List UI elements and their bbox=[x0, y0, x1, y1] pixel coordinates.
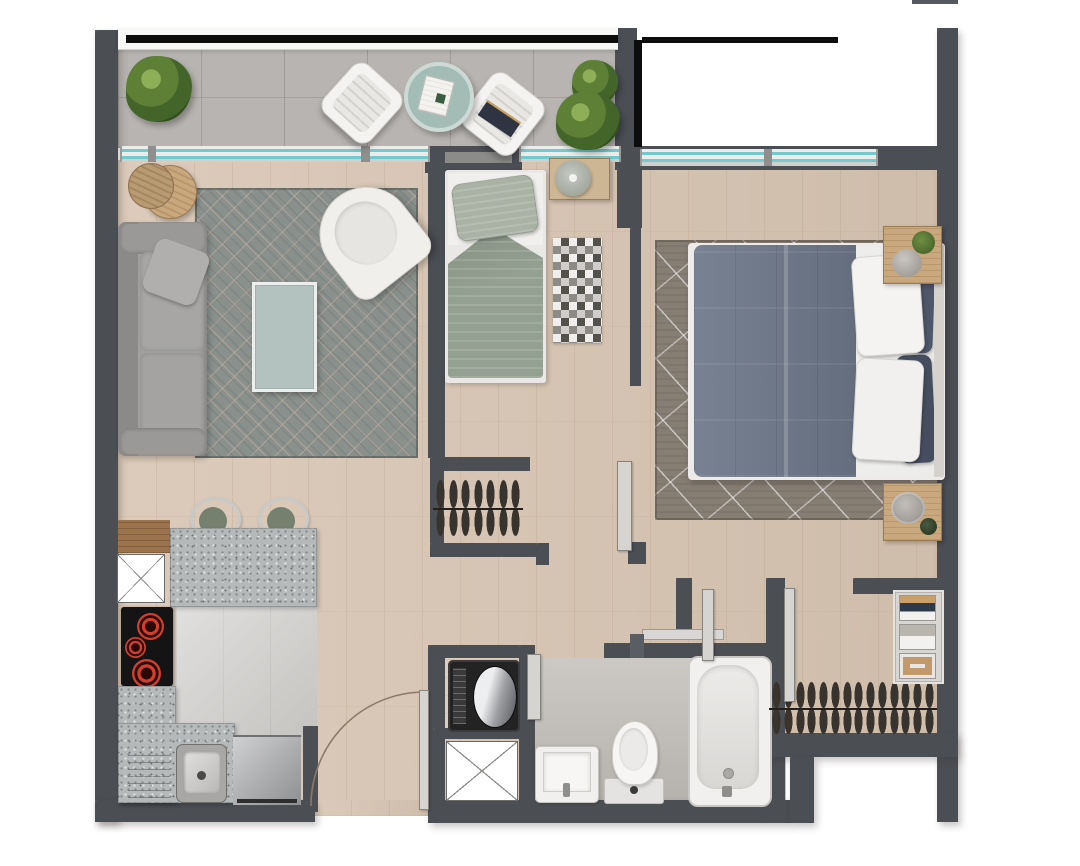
dishwasher bbox=[233, 735, 301, 805]
breakfast-bar-counter bbox=[170, 528, 317, 607]
sofa-back bbox=[118, 222, 138, 456]
sofa-armrest-bottom bbox=[121, 428, 205, 454]
kitchen-sink bbox=[176, 744, 227, 803]
burner-1 bbox=[137, 613, 164, 640]
nightstand-master-bottom bbox=[883, 483, 942, 541]
neighbor-railing-bar bbox=[642, 37, 838, 43]
nightstand-small-bedroom bbox=[549, 158, 610, 200]
neighbor-wall-sliver bbox=[912, 0, 958, 4]
nightstand-plant-small bbox=[920, 518, 937, 535]
cooktop bbox=[121, 607, 173, 686]
wall-smallbed-master-b bbox=[630, 228, 641, 386]
wall-living-smallbed bbox=[428, 146, 445, 458]
bathtub-drain bbox=[723, 768, 734, 779]
sofa bbox=[118, 222, 207, 456]
wall-closet-entry-stub bbox=[676, 578, 692, 633]
side-table-small bbox=[128, 163, 174, 209]
shelf-stack-1 bbox=[899, 595, 936, 621]
nightstand-pouf bbox=[891, 492, 925, 524]
single-bed bbox=[445, 170, 546, 383]
floor-plan bbox=[0, 0, 1080, 866]
single-bed-pillow bbox=[450, 174, 539, 243]
wall-closet-leg bbox=[790, 757, 814, 823]
single-bed-duvet bbox=[448, 228, 543, 378]
burner-2 bbox=[125, 637, 146, 658]
bathroom-sink bbox=[535, 746, 599, 803]
entry-door-swing-arc bbox=[308, 690, 428, 810]
sink-drain bbox=[197, 771, 206, 780]
wall-hallcloset-stub bbox=[536, 543, 549, 565]
sink-faucet bbox=[563, 783, 570, 797]
towel-bar-bracket bbox=[630, 634, 644, 658]
toilet-bowl bbox=[612, 721, 658, 785]
sliding-door-master bbox=[617, 461, 632, 551]
window-master bbox=[640, 149, 878, 166]
window-living bbox=[120, 146, 430, 162]
wall-closet-bottom bbox=[766, 733, 958, 757]
washer-lid bbox=[473, 666, 517, 728]
wall-laundry-left bbox=[428, 645, 445, 803]
closet-shelf-unit bbox=[893, 590, 944, 684]
chair-towel bbox=[330, 71, 393, 135]
bathtub-faucet bbox=[722, 786, 732, 797]
washer-controls bbox=[453, 668, 466, 724]
wall-hallcloset-top bbox=[430, 457, 530, 471]
small-bedroom-rug bbox=[553, 238, 602, 343]
armchair-seat bbox=[322, 189, 410, 278]
balcony-railing-return bbox=[634, 40, 642, 147]
toilet-seat bbox=[619, 728, 648, 771]
kitchen-floor bbox=[176, 607, 317, 737]
washing-machine bbox=[448, 660, 520, 732]
nightstand-tray bbox=[892, 249, 922, 277]
nightstand-master-top bbox=[883, 226, 942, 284]
wall-left bbox=[95, 30, 118, 822]
wall-smallbed-master-a bbox=[617, 168, 642, 228]
sliding-door-bathroom bbox=[527, 654, 541, 720]
dishwasher-kick bbox=[237, 799, 297, 803]
walkin-closet-hangers bbox=[772, 681, 934, 735]
hall-closet-hangers bbox=[436, 479, 520, 537]
toilet-flush-dot bbox=[630, 786, 638, 794]
entry-door-leaf bbox=[419, 690, 429, 810]
service-shaft-laundry bbox=[446, 741, 518, 801]
burner-3 bbox=[132, 659, 161, 688]
drainboard bbox=[128, 750, 170, 798]
table-lamp-finial bbox=[569, 174, 577, 182]
window-master-mullion bbox=[764, 149, 772, 166]
window-living-mullion-1 bbox=[148, 146, 156, 162]
balcony-plant-right bbox=[556, 92, 620, 150]
master-duvet-fold bbox=[784, 245, 788, 477]
balcony-round-table bbox=[404, 62, 474, 132]
service-shaft-kitchen bbox=[117, 554, 165, 603]
sliding-door-closet-left bbox=[702, 589, 714, 661]
shelf-stack-2 bbox=[899, 624, 936, 650]
balcony-plant-left bbox=[126, 56, 192, 122]
wall-hallcloset-bottom bbox=[430, 543, 536, 557]
master-duvet bbox=[694, 245, 856, 477]
sliding-door-closet-right bbox=[784, 588, 795, 702]
window-living-mullion-2 bbox=[361, 146, 370, 162]
coffee-table bbox=[252, 282, 317, 392]
shelf-box bbox=[899, 653, 936, 679]
master-pillow-white-2 bbox=[851, 357, 924, 462]
balcony-railing-bar bbox=[126, 35, 618, 43]
kitchen-cabinet-wood bbox=[118, 520, 170, 553]
bathtub bbox=[688, 656, 772, 807]
